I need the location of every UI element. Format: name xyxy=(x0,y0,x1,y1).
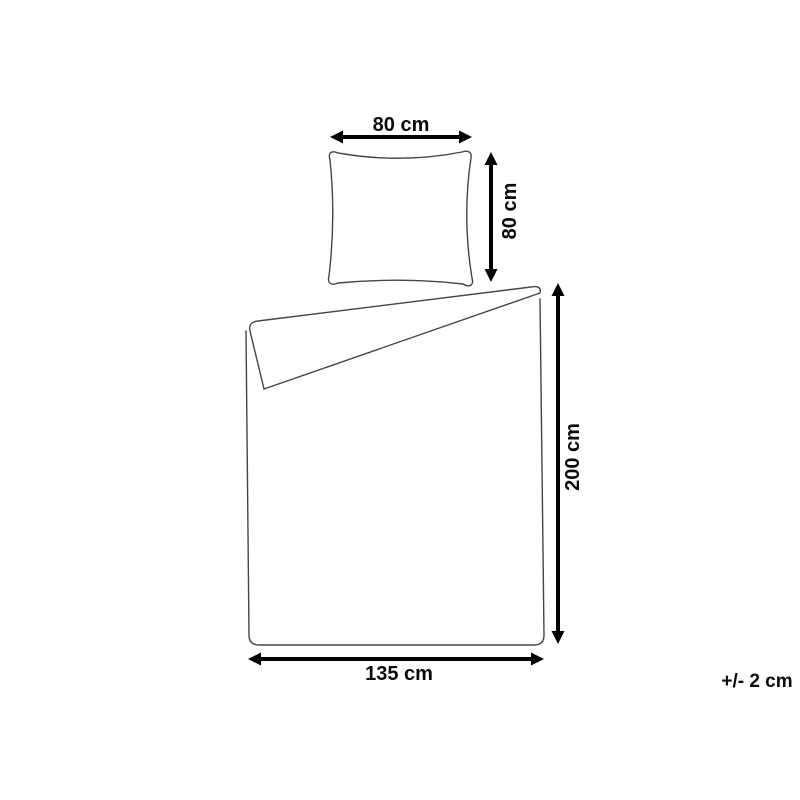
dimension-diagram: 80 cm 80 cm 200 cm 135 cm +/- 2 cm xyxy=(0,0,800,800)
pillow-shape xyxy=(328,151,472,286)
arrow-head-right xyxy=(459,131,472,144)
duvet-body-outline xyxy=(246,299,544,645)
duvet-height-label: 200 cm xyxy=(562,423,584,491)
tolerance-label: +/- 2 cm xyxy=(721,671,792,692)
duvet-fold-flap xyxy=(250,287,541,389)
pillow-outline xyxy=(328,151,472,286)
arrow-head-up xyxy=(552,283,565,296)
pillow-height-label: 80 cm xyxy=(499,183,521,240)
pillow-height-arrow xyxy=(485,152,498,282)
arrow-head-left xyxy=(330,131,343,144)
duvet-width-label: 135 cm xyxy=(365,663,433,685)
arrow-head-left xyxy=(248,653,261,666)
arrow-head-right xyxy=(531,653,544,666)
arrow-head-down xyxy=(552,631,565,644)
pillow-width-label: 80 cm xyxy=(373,114,430,136)
arrow-head-down xyxy=(485,269,498,282)
arrow-head-up xyxy=(485,152,498,165)
duvet-shape xyxy=(246,287,544,645)
